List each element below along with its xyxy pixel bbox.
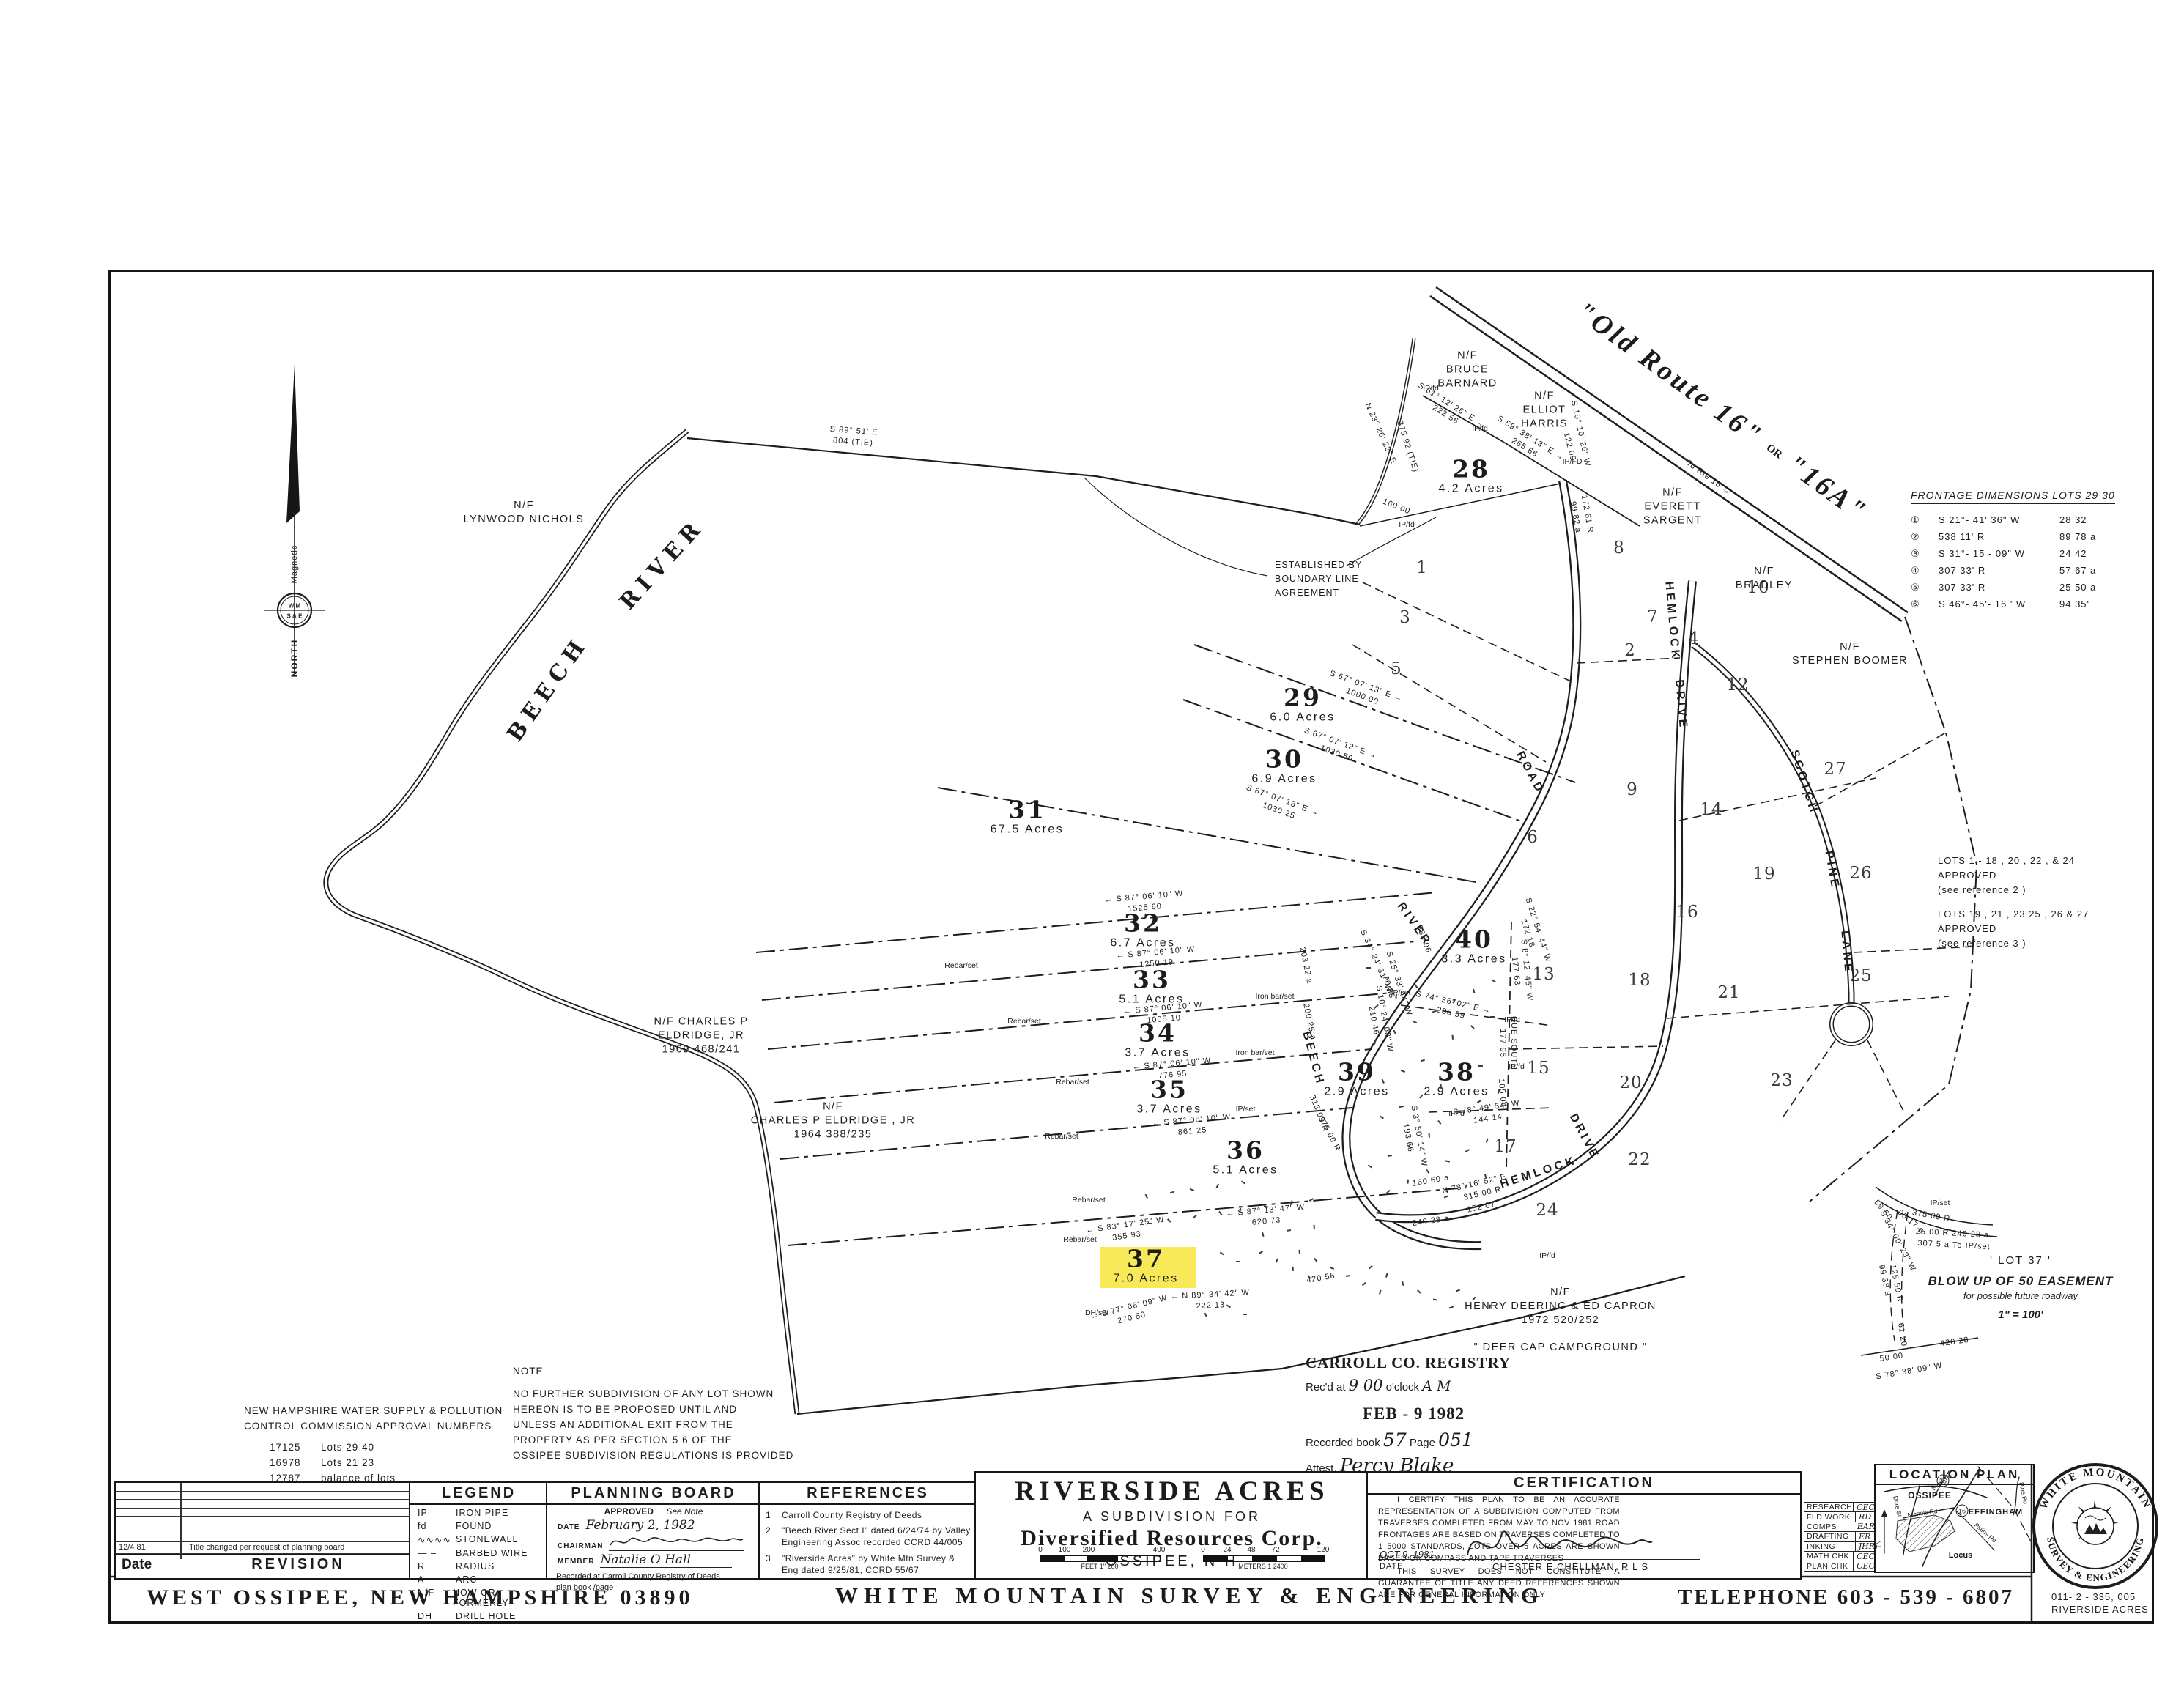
abutter-line: 1964 388/235: [751, 1128, 915, 1141]
bearing-label: ← N 89° 34' 42" W222 13: [1170, 1287, 1251, 1313]
certification-date-value: OCT 9, 1981: [1380, 1549, 1434, 1560]
survey-marker-label: IP/set: [1236, 1105, 1256, 1114]
abutter-label: N/FBRUCEBARNARD: [1437, 349, 1497, 391]
legend-row: ∿∿∿∿STONEWALL: [410, 1533, 547, 1547]
lot-number: 28: [1438, 457, 1503, 481]
legend-symbol: IP: [418, 1508, 456, 1518]
approved-note-line: LOTS 19 , 21 , 23 25 , 26 & 27: [1938, 907, 2089, 922]
frontage-row-bearing: 307 33' R: [1939, 565, 2059, 577]
boundary-note-line: ESTABLISHED BY: [1275, 558, 1362, 572]
lot-label: 326.7 Acres: [1110, 911, 1175, 950]
frontage-row-bearing: 538 11' R: [1939, 531, 2059, 543]
subdivision-note: NOTE NO FURTHER SUBDIVISION OF ANY LOT S…: [513, 1364, 793, 1464]
title-block: RIVERSIDE ACRES A SUBDIVISION FOR Divers…: [974, 1471, 1369, 1580]
boundary-agreement-note: ESTABLISHED BYBOUNDARY LINEAGREEMENT: [1275, 558, 1362, 599]
small-lot-number: 22: [1628, 1150, 1651, 1169]
lot-acreage: 4.2 Acres: [1438, 483, 1503, 496]
frontage-table: FRONTAGE DIMENSIONS LOTS 29 30 ①S 21°- 4…: [1911, 489, 2115, 615]
abutter-line: ELLIOT: [1521, 404, 1568, 418]
certification-box: CERTIFICATION I CERTIFY THIS PLAN TO BE …: [1366, 1471, 1802, 1580]
note-line: NO FURTHER SUBDIVISION OF ANY LOT SHOWN: [513, 1387, 793, 1402]
location-effingham-label: EFFINGHAM: [1969, 1508, 2023, 1517]
frontage-row-bearing: 307 33' R: [1939, 582, 2059, 593]
abutter-line: N/F CHARLES P: [654, 1015, 748, 1029]
water-note-row: 17125Lots 29 40: [244, 1440, 503, 1456]
survey-marker-label: IP/fd: [1448, 1109, 1465, 1118]
ground-texture-mark: [1243, 1314, 1247, 1315]
ground-texture-mark: [1147, 1223, 1152, 1224]
survey-marker-label: Rebar/set: [944, 961, 978, 970]
frontage-row: ②538 11' R89 78 a: [1911, 531, 2115, 543]
credits-table: RESEARCHCECFLD WORKRDCOMPSEARDRAFTINGERI…: [1804, 1502, 1876, 1572]
credit-role: FLD WORK: [1804, 1512, 1856, 1521]
credit-initials: JHR: [1856, 1541, 1875, 1551]
lot-label: 365.1 Acres: [1213, 1139, 1278, 1177]
blowup-note-line: ' LOT 37 ': [1928, 1254, 2114, 1267]
legend-symbol: A: [418, 1574, 456, 1585]
credit-initials: CEC: [1854, 1552, 1875, 1561]
legend-title: LEGEND: [410, 1483, 547, 1505]
lot-label: 335.1 Acres: [1119, 968, 1184, 1007]
frontage-row-distance: 57 67 a: [2059, 565, 2096, 577]
small-lot-number: 5: [1391, 659, 1402, 678]
compass-monogram-bottom: S & E: [287, 613, 303, 620]
survey-marker-label: Iron bar/set: [1255, 992, 1294, 1001]
frontage-row: ⑤307 33' R25 50 a: [1911, 582, 2115, 593]
company-name-strip: WHITE MOUNTAIN SURVEY & ENGINEERING: [835, 1582, 1544, 1609]
lot-label: 3167.5 Acres: [991, 798, 1065, 837]
plan-client: Diversified Resources Corp.: [976, 1526, 1368, 1551]
abutter-label: N/FCHARLES P ELDRIDGE , JR1964 388/235: [751, 1100, 915, 1142]
stamp-recorded-label: Recorded book: [1306, 1437, 1380, 1449]
ground-texture-mark: [1236, 1261, 1240, 1262]
route-16-number: 16: [1958, 1507, 1966, 1514]
magnetic-label: Magnetic: [290, 545, 299, 584]
credit-initials: ER: [1856, 1532, 1875, 1541]
scale-tick-label: 400: [1153, 1546, 1166, 1554]
small-lot-number: 18: [1628, 971, 1651, 990]
abutter-line: N/F: [751, 1100, 915, 1114]
reference-text: Carroll County Registry of Deeds: [782, 1509, 922, 1521]
telephone-strip: TELEPHONE 603 - 539 - 6807: [1678, 1585, 2014, 1610]
credit-row: DRAFTINGER: [1804, 1532, 1875, 1541]
route-or: OR: [1764, 442, 1785, 461]
abutter-line: HENRY DEERING & ED CAPRON: [1465, 1300, 1656, 1314]
legend-meaning: IRON PIPE: [456, 1508, 508, 1518]
small-lot-number: 8: [1613, 538, 1625, 558]
route-16-shield: 16: [1956, 1505, 1969, 1517]
frontage-row: ③S 31°- 15 - 09" W24 42: [1911, 548, 2115, 560]
abutter-line: N/F: [1736, 565, 1793, 579]
lot-number: 36: [1213, 1139, 1278, 1163]
scale-tick-label: 0: [1201, 1546, 1205, 1554]
abutter-line: " DEER CAP CAMPGROUND ": [1465, 1341, 1656, 1355]
frontage-row: ⑥S 46°- 45'- 16 ' W94 35': [1911, 599, 2115, 610]
water-note-title-1: NEW HAMPSHIRE WATER SUPPLY & POLLUTION: [244, 1404, 503, 1419]
lot-label: 353.7 Acres: [1136, 1078, 1202, 1117]
credit-row: PLAN CHKCEC: [1804, 1561, 1875, 1571]
abutter-line: BRUCE: [1437, 363, 1497, 377]
lot-label: 296.0 Acres: [1270, 686, 1335, 725]
planning-member-label: MEMBER: [558, 1558, 594, 1566]
water-supply-note: NEW HAMPSHIRE WATER SUPPLY & POLLUTION C…: [244, 1404, 503, 1487]
small-lot-number: 2: [1624, 641, 1636, 660]
scale-tick-label: 200: [1083, 1546, 1095, 1554]
small-lot-number: 9: [1626, 780, 1638, 799]
credit-row: COMPSEAR: [1804, 1522, 1875, 1532]
lot-acreage: 67.5 Acres: [991, 823, 1065, 837]
plan-file-number: 011- 2 - 335, 005: [2051, 1591, 2136, 1602]
frontage-row-distance: 89 78 a: [2059, 531, 2096, 543]
abutter-line: 1969 468/241: [654, 1043, 748, 1056]
small-lot-number: 15: [1527, 1059, 1550, 1078]
scale-tick-label: 120: [1317, 1546, 1330, 1554]
frontage-row-distance: 28 32: [2059, 514, 2087, 526]
lot-acreage: 2.9 Acres: [1424, 1086, 1489, 1099]
chairman-signature: [609, 1535, 744, 1551]
references-title: REFERENCES: [760, 1483, 976, 1505]
ground-texture-mark: [1478, 1065, 1483, 1067]
abutter-label: N/FELLIOTHARRIS: [1521, 390, 1568, 432]
survey-marker-label: Rebar/set: [1063, 1235, 1097, 1244]
planning-board-box: PLANNING BOARD APPROVED See Note DATEFeb…: [546, 1481, 761, 1580]
stamp-date: FEB - 9 1982: [1363, 1404, 1547, 1424]
abutter-label: N/FEVERETTSARGENT: [1643, 486, 1703, 528]
certification-title: CERTIFICATION: [1368, 1473, 1800, 1495]
revision-description: Title changed per request of planning bo…: [183, 1543, 344, 1552]
lot-label: 392.9 Acres: [1324, 1060, 1389, 1099]
stamp-page-number: 051: [1438, 1429, 1473, 1451]
frontage-row-number: ⑥: [1911, 599, 1939, 610]
planning-date-label: DATE: [558, 1523, 580, 1531]
small-lot-number: 4: [1688, 629, 1700, 648]
approval-number: 17125: [270, 1440, 321, 1456]
approval-number: 16978: [270, 1456, 321, 1471]
scale-tick-label: 100: [1059, 1546, 1071, 1554]
legend-symbol: R: [418, 1561, 456, 1572]
credit-row: INKINGJHR: [1804, 1542, 1875, 1552]
legend-row: RRADIUS: [410, 1560, 547, 1573]
abutter-label: N/F CHARLES PELDRIDGE, JR1969 468/241: [654, 1015, 748, 1057]
approved-note-line: (see reference 2 ): [1938, 883, 2075, 897]
lot-number: 31: [991, 798, 1065, 822]
water-note-row: 16978Lots 21 23: [244, 1456, 503, 1471]
small-lot-number: 24: [1536, 1201, 1558, 1220]
boundary-note-line: AGREEMENT: [1275, 586, 1362, 600]
lots-approved-note-2: LOTS 19 , 21 , 23 25 , 26 & 27APPROVED(s…: [1938, 907, 2089, 951]
scale-tick-label: 0: [1038, 1546, 1043, 1554]
lot-acreage: 2.9 Acres: [1324, 1086, 1389, 1099]
ground-texture-mark: [1429, 1133, 1430, 1138]
surveyor-signature-squiggle: [1463, 1525, 1654, 1563]
stamp-page-label: Page: [1410, 1437, 1435, 1449]
abutter-line: 1972 520/252: [1465, 1314, 1656, 1328]
note-title: NOTE: [513, 1364, 793, 1380]
abutter-line: N/F: [1792, 640, 1908, 654]
survey-marker-label: IP/fd: [1509, 1062, 1525, 1071]
abutter-label: N/FLYNWOOD NICHOLS: [464, 499, 585, 527]
legend-symbol: ∿∿∿∿: [418, 1534, 456, 1545]
reference-text: "Riverside Acres" by White Mtn Survey & …: [782, 1552, 971, 1576]
revision-date-header: Date: [116, 1557, 186, 1573]
frontage-row-number: ②: [1911, 531, 1939, 543]
small-lot-number: 7: [1647, 607, 1659, 626]
credit-initials: CEC: [1854, 1561, 1875, 1571]
survey-marker-label: IP/fd: [1504, 1015, 1520, 1024]
legend-symbol: — –: [418, 1548, 456, 1558]
lot-acreage: 3.7 Acres: [1136, 1103, 1202, 1117]
blowup-note-line: for possible future roadway: [1928, 1290, 2114, 1301]
address-strip: WEST OSSIPEE, NEW HAMPSHIRE 03890: [147, 1585, 694, 1610]
legend-row: AARC: [410, 1573, 547, 1586]
plan-title: RIVERSIDE ACRES: [976, 1476, 1368, 1507]
survey-marker-label: IP/set: [1931, 1199, 1950, 1207]
frontage-row-distance: 25 50 a: [2059, 582, 2096, 593]
abutter-label: N/FHENRY DEERING & ED CAPRON1972 520/252…: [1465, 1286, 1656, 1355]
approved-note-line: (see reference 3 ): [1938, 936, 2089, 951]
boundary-note-line: BOUNDARY LINE: [1275, 572, 1362, 586]
frontage-row-number: ③: [1911, 548, 1939, 560]
legend-meaning: RADIUS: [456, 1561, 495, 1572]
small-lot-number: 17: [1494, 1137, 1517, 1156]
water-note-title-2: CONTROL COMMISSION APPROVAL NUMBERS: [244, 1419, 503, 1435]
small-lot-number: 19: [1752, 865, 1775, 884]
plan-subtitle: A SUBDIVISION FOR: [976, 1509, 1368, 1525]
revision-header: REVISION: [186, 1556, 410, 1573]
credit-initials: RD: [1856, 1512, 1875, 1522]
ground-texture-mark: [1366, 967, 1371, 969]
credit-role: MATH CHK: [1804, 1552, 1854, 1561]
survey-marker-label: IP/set: [1391, 988, 1411, 997]
survey-marker-label: Iron bar/set: [1235, 1048, 1274, 1057]
revision-table: 12/4 81 Title changed per request of pla…: [114, 1481, 412, 1580]
abutter-line: ELDRIDGE, JR: [654, 1029, 748, 1043]
frontage-row-number: ⑤: [1911, 582, 1939, 593]
survey-marker-label: IP/fd: [1423, 384, 1439, 393]
references-box: REFERENCES 1Carroll County Registry of D…: [758, 1481, 977, 1580]
lot-number: 37: [1113, 1247, 1178, 1271]
survey-marker-label: IP/FD: [1563, 457, 1583, 466]
small-lot-number: 20: [1619, 1073, 1642, 1092]
planning-recorded-line1: Recorded at Carroll County Registry of D…: [556, 1572, 760, 1582]
abutter-line: N/F: [1437, 349, 1497, 363]
planning-member-value: Natalie O Hall: [600, 1552, 732, 1568]
abutter-line: N/F: [464, 499, 585, 513]
frontage-row-distance: 94 35': [2059, 599, 2089, 610]
lot-label: 377.0 Acres: [1113, 1247, 1178, 1286]
ground-texture-mark: [1299, 1250, 1300, 1254]
planning-chairman-label: CHAIRMAN: [558, 1542, 603, 1550]
frontage-row-distance: 24 42: [2059, 548, 2087, 560]
credit-initials: CEC: [1854, 1503, 1875, 1512]
feet-scale-bar: [1040, 1555, 1161, 1562]
lot-37-blowup-note: ' LOT 37 'BLOW UP OF 50 EASEMENTfor poss…: [1928, 1254, 2114, 1321]
frontage-row-bearing: S 31°- 15 - 09" W: [1939, 548, 2059, 560]
planning-board-title: PLANNING BOARD: [547, 1483, 760, 1505]
credit-row: MATH CHKCEC: [1804, 1552, 1875, 1561]
small-lot-number: 1: [1416, 558, 1428, 577]
small-lot-number: 3: [1399, 608, 1411, 627]
note-line: HEREON IS TO BE PROPOSED UNTIL AND: [513, 1402, 793, 1418]
legend-row: DHDRILL HOLE: [410, 1610, 547, 1623]
ground-texture-mark: [1440, 1084, 1442, 1089]
small-lot-number: 26: [1849, 864, 1872, 883]
survey-marker-label: DH/set: [1085, 1308, 1108, 1317]
small-lot-number: 6: [1527, 828, 1539, 847]
reference-item: 3"Riverside Acres" by White Mtn Survey &…: [760, 1550, 976, 1577]
compass-monogram-top: W M: [289, 603, 300, 610]
note-line: UNLESS AN ADDITIONAL EXIT FROM THE: [513, 1418, 793, 1433]
reference-number: 1: [766, 1509, 782, 1521]
legend-box: LEGEND IPIRON PIPEfdFOUND∿∿∿∿STONEWALL— …: [409, 1481, 549, 1580]
planning-date-value: February 2, 1982: [585, 1518, 717, 1533]
approved-label: APPROVED: [604, 1506, 654, 1517]
scale-tick-label: 24: [1223, 1546, 1231, 1554]
survey-marker-label: Rebar/set: [1007, 1017, 1041, 1026]
route-25-shield: 25: [1937, 1475, 1950, 1487]
location-true-north-label: TN: [1875, 1540, 1882, 1548]
stamp-book-number: 57: [1383, 1429, 1407, 1451]
frontage-row-bearing: S 46°- 45'- 16 ' W: [1939, 599, 2059, 610]
frontage-row: ①S 21°- 41' 36" W28 32: [1911, 514, 2115, 526]
small-lot-number: 14: [1700, 800, 1722, 819]
plan-file-name: RIVERSIDE ACRES: [2051, 1604, 2149, 1615]
reference-text: "Beech River Sect I" dated 6/24/74 by Va…: [782, 1525, 971, 1548]
credit-role: RESEARCH: [1804, 1503, 1854, 1511]
frontage-row-number: ①: [1911, 514, 1939, 526]
small-lot-number: 12: [1726, 675, 1749, 695]
lot-number: 39: [1324, 1060, 1389, 1084]
abutter-line: EVERETT: [1643, 500, 1703, 514]
lot-label: 284.2 Acres: [1438, 457, 1503, 496]
reference-item: 2"Beech River Sect I" dated 6/24/74 by V…: [760, 1522, 976, 1550]
certification-surveyor-name: CHESTER E CHELLMAN, R L S: [1492, 1561, 1648, 1572]
abutter-label: N/FSTEPHEN BOOMER: [1792, 640, 1908, 668]
location-locus-label: Locus: [1946, 1551, 1975, 1561]
credit-initials: EAR: [1854, 1522, 1875, 1531]
stamp-oclock-label: o'clock: [1386, 1381, 1419, 1393]
frontage-row-bearing: S 21°- 41' 36" W: [1939, 514, 2059, 526]
meters-scale-bar: [1203, 1555, 1325, 1562]
credit-role: PLAN CHK: [1804, 1561, 1854, 1570]
credit-row: RESEARCHCEC: [1804, 1503, 1875, 1512]
abutter-line: N/F: [1643, 486, 1703, 500]
note-line: OSSIPEE SUBDIVISION REGULATIONS IS PROVI…: [513, 1448, 793, 1464]
lot-acreage: 6.0 Acres: [1270, 711, 1335, 725]
small-lot-number: 27: [1824, 760, 1846, 779]
lots-approved-note-1: LOTS 1 - 18 , 20 , 22 , & 24APPROVED(see…: [1938, 854, 2075, 897]
reference-number: 2: [766, 1525, 782, 1548]
bearing-label: S 89° 51' E804 (TIE): [829, 424, 878, 449]
abutter-line: BARNARD: [1437, 377, 1497, 390]
small-lot-number: 13: [1532, 965, 1555, 984]
see-note-label: See Note: [666, 1506, 703, 1517]
lot-acreage: 7.0 Acres: [1113, 1273, 1178, 1286]
lot-number: 38: [1424, 1060, 1489, 1084]
legend-row: fdFOUND: [410, 1519, 547, 1533]
abutter-line: BRADLEY: [1736, 579, 1793, 593]
lot-label: 306.9 Acres: [1251, 747, 1317, 786]
north-label: NORTH: [289, 639, 300, 678]
chairman-signature-squiggle: [609, 1535, 744, 1548]
approved-note-line: APPROVED: [1938, 922, 2089, 936]
lot-acreage: 5.1 Acres: [1213, 1164, 1278, 1177]
legend-meaning: DRILL HOLE: [456, 1611, 516, 1621]
abutter-line: [1465, 1327, 1656, 1341]
blowup-note-line: BLOW UP OF 50 EASEMENT: [1928, 1274, 2114, 1289]
meters-scale-label: METERS 1 2400: [1238, 1563, 1288, 1570]
lot-label: 403.3 Acres: [1441, 928, 1506, 966]
lot-acreage: 3.3 Acres: [1441, 953, 1506, 966]
abutter-line: CHARLES P ELDRIDGE , JR: [751, 1114, 915, 1128]
approved-note-line: LOTS 1 - 18 , 20 , 22 , & 24: [1938, 854, 2075, 868]
stamp-recd-label: Rec'd at: [1306, 1381, 1346, 1393]
location-plan-title: LOCATION PLAN: [1876, 1465, 2033, 1485]
small-lot-number: 16: [1676, 903, 1698, 922]
abutter-line: N/F: [1465, 1286, 1656, 1300]
frontage-title: FRONTAGE DIMENSIONS LOTS 29 30: [1911, 489, 2115, 504]
approval-lots: Lots 21 23: [321, 1456, 374, 1471]
survey-marker-label: IP/fd: [1472, 424, 1488, 433]
approved-note-line: APPROVED: [1938, 868, 2075, 883]
scale-tick-label: 72: [1271, 1546, 1279, 1554]
approval-lots: Lots 29 40: [321, 1440, 374, 1456]
legend-meaning: FOUND: [456, 1521, 492, 1531]
abutter-line: HARRIS: [1521, 417, 1568, 431]
legend-row: IPIRON PIPE: [410, 1506, 547, 1519]
legend-symbol: fd: [418, 1521, 456, 1531]
survey-marker-label: IP/fd: [1539, 1251, 1555, 1260]
credit-role: DRAFTING: [1804, 1532, 1856, 1541]
abutter-line: N/F: [1521, 390, 1568, 404]
legend-meaning: STONEWALL: [456, 1534, 518, 1545]
reference-number: 3: [766, 1552, 782, 1576]
route-25-number: 25: [1939, 1477, 1947, 1484]
credit-role: INKING: [1804, 1542, 1856, 1551]
stamp-recd-time: 9 00: [1349, 1377, 1383, 1394]
lot-number: 30: [1251, 747, 1317, 771]
survey-marker-label: IP/fd: [1399, 520, 1415, 529]
survey-marker-label: Rebar/set: [1056, 1078, 1089, 1087]
legend-row: — –BARBED WIRE: [410, 1547, 547, 1560]
reference-item: 1Carroll County Registry of Deeds: [760, 1507, 976, 1522]
stamp-am-pm: A M: [1422, 1378, 1451, 1394]
credit-row: FLD WORKRD: [1804, 1512, 1875, 1522]
legend-meaning: ARC: [456, 1574, 477, 1585]
small-lot-number: 21: [1717, 983, 1740, 1002]
location-ossipee-label: OSSIPEE: [1908, 1490, 1952, 1500]
frontage-row-number: ④: [1911, 565, 1939, 577]
abutter-line: LYNWOOD NICHOLS: [464, 513, 585, 527]
note-line: PROPERTY AS PER SECTION 5 6 OF THE: [513, 1433, 793, 1448]
ground-texture-mark: [1490, 1016, 1495, 1018]
scale-tick-label: 48: [1247, 1546, 1255, 1554]
survey-plan-sheet: THE STATE OF NEW HAMPSHIRE REGISTERED LA…: [0, 0, 2184, 1688]
survey-marker-label: Rebar/set: [1072, 1196, 1106, 1204]
abutter-label: N/FBRADLEY: [1736, 565, 1793, 593]
distance-text: 177 95: [1497, 1016, 1508, 1070]
certification-date-label: DATE: [1380, 1562, 1404, 1571]
survey-marker-label: Rebar/set: [1045, 1132, 1078, 1141]
lot-acreage: 6.9 Acres: [1251, 773, 1317, 786]
frontage-row: ④307 33' R57 67 a: [1911, 565, 2115, 577]
small-lot-number: 23: [1770, 1071, 1793, 1090]
legend-symbol: DH: [418, 1611, 456, 1621]
credit-role: COMPS: [1804, 1522, 1854, 1531]
abutter-line: SARGENT: [1643, 514, 1703, 527]
feet-scale-label: FEET 1" 200: [1081, 1563, 1118, 1570]
legend-meaning: BARBED WIRE: [456, 1548, 528, 1558]
